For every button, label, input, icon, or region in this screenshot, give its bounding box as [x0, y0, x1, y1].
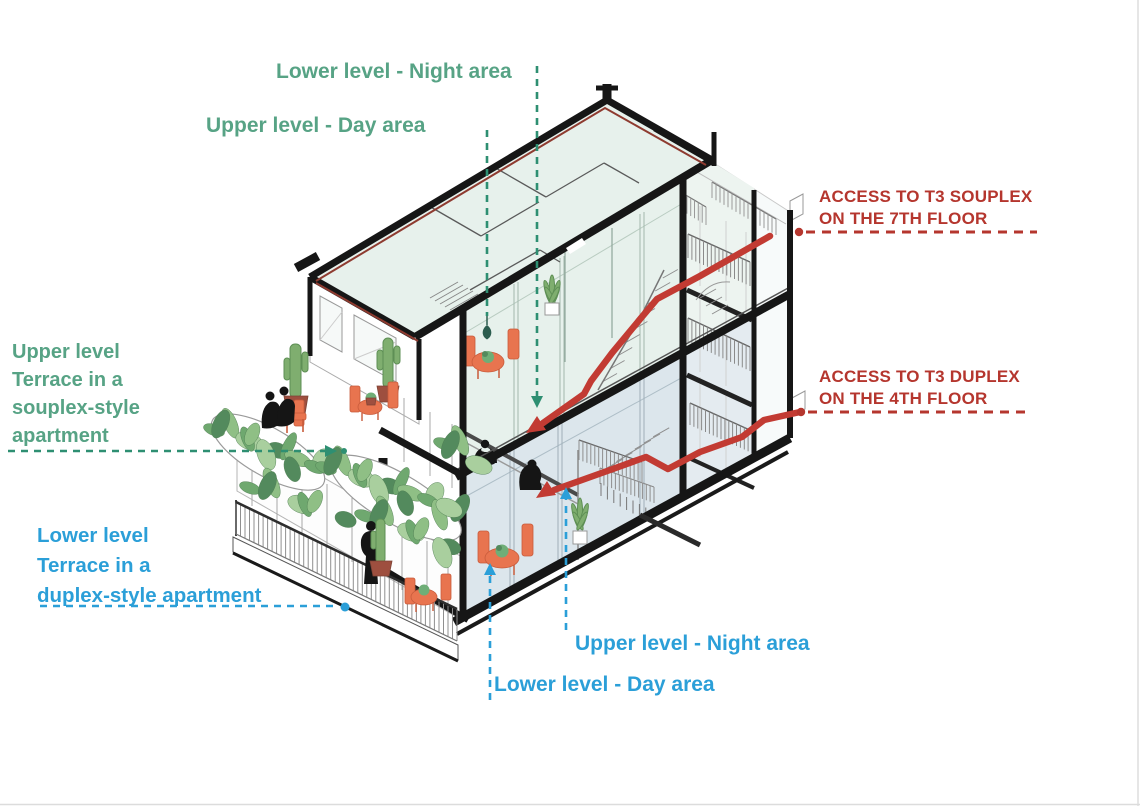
label-duplex-terrace: Lower level Terrace in a duplex-style ap… — [37, 521, 261, 611]
label-line: ACCESS TO T3 SOUPLEX — [819, 186, 1032, 208]
label-line: ON THE 7TH FLOOR — [819, 208, 1032, 230]
label-text: Lower level - Night area — [276, 60, 512, 83]
label-souplex-terrace: Upper level Terrace in a souplex-style a… — [12, 338, 140, 450]
label-text: Upper level - Day area — [206, 114, 425, 137]
label-line: Terrace in a — [12, 366, 140, 394]
label-lower-level-day-area: Lower level - Day area — [494, 673, 715, 697]
label-line: duplex-style apartment — [37, 581, 261, 611]
label-text: Upper level - Night area — [575, 632, 810, 655]
label-line: ON THE 4TH FLOOR — [819, 388, 1020, 410]
label-text: Lower level - Day area — [494, 673, 715, 696]
label-line: Terrace in a — [37, 551, 261, 581]
label-line: ACCESS TO T3 DUPLEX — [819, 366, 1020, 388]
label-line: souplex-style — [12, 394, 140, 422]
label-access-t3-duplex: ACCESS TO T3 DUPLEX ON THE 4TH FLOOR — [819, 366, 1020, 410]
label-line: Upper level — [12, 338, 140, 366]
label-line: Lower level — [37, 521, 261, 551]
label-upper-level-night-area: Upper level - Night area — [575, 632, 810, 656]
label-access-t3-souplex: ACCESS TO T3 SOUPLEX ON THE 7TH FLOOR — [819, 186, 1032, 230]
label-upper-level-day-area: Upper level - Day area — [206, 114, 425, 138]
label-lower-level-night-area: Lower level - Night area — [276, 60, 512, 84]
label-line: apartment — [12, 422, 140, 450]
